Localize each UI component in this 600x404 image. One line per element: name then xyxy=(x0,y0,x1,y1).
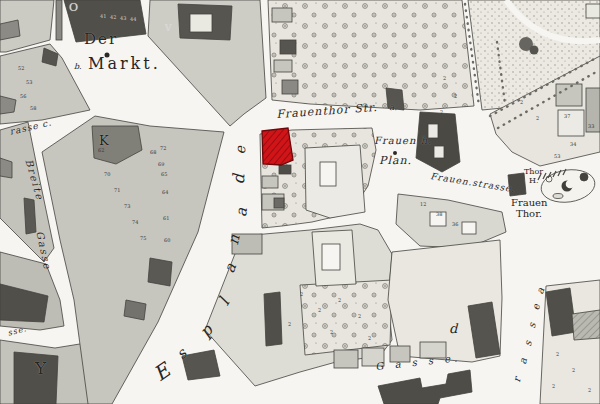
block-sc-orchard xyxy=(300,280,392,355)
bldg-far-se-hatch xyxy=(572,310,600,340)
bldg-orchard-w3 xyxy=(274,60,292,72)
highlighted-building-red xyxy=(262,128,293,165)
bldg-ne2 xyxy=(558,110,584,136)
block-orchard-north xyxy=(268,0,474,110)
bldg-cg-2d xyxy=(274,198,284,208)
bldg-sc-darkstrip xyxy=(264,292,282,346)
block-cw-dark1 xyxy=(148,258,172,286)
block-sw-lower-dark xyxy=(14,352,58,404)
bldg-below-red xyxy=(279,165,291,174)
bldg-frauenthor-north xyxy=(386,88,404,110)
block-fs-hole2 xyxy=(462,222,476,234)
bldg-bc-4 xyxy=(420,342,446,358)
frauen-thor-gate xyxy=(508,173,526,196)
block-strip xyxy=(56,0,62,40)
block-bgw-dark xyxy=(24,198,36,234)
bldg-cg-1 xyxy=(262,176,278,188)
block-nw-dark-patch xyxy=(0,20,20,40)
block-cw-dark2 xyxy=(124,300,146,320)
oval-bed xyxy=(553,194,563,199)
block-tc-hole xyxy=(190,14,212,32)
park-corner-bldg xyxy=(586,4,600,18)
bldg-bc-1 xyxy=(334,350,358,368)
oval-circle-2 xyxy=(580,173,588,181)
map-figure: DerMarkt.b.Frauenthor Str.a.Frauen h.Pla… xyxy=(0,0,600,404)
bldg-bc-2 xyxy=(362,348,384,366)
block-north-of-markt xyxy=(64,0,146,42)
park-tree-clump2 xyxy=(530,46,539,55)
bldg-orchard-w4 xyxy=(282,80,298,94)
bldg-orchard-w2 xyxy=(280,40,296,54)
bldg-sc-hole xyxy=(322,244,340,270)
markt-fountain-dot xyxy=(105,53,110,58)
bldg-sc-row xyxy=(232,234,262,254)
bldg-ne1 xyxy=(556,84,582,106)
bldg-bc-3 xyxy=(390,346,410,362)
bldg-fp-hole1 xyxy=(428,124,438,138)
block-bgw-dark2 xyxy=(0,158,12,178)
bldg-ne3 xyxy=(586,88,600,132)
bldg-court-hole xyxy=(320,162,336,186)
frauenplan-dot xyxy=(393,151,397,155)
oval-crescent-light xyxy=(566,180,575,189)
map-canvas xyxy=(0,0,600,404)
bldg-orchard-w1 xyxy=(272,8,292,22)
bldg-fp-hole2 xyxy=(434,146,444,158)
block-fs-hole1 xyxy=(430,212,446,226)
